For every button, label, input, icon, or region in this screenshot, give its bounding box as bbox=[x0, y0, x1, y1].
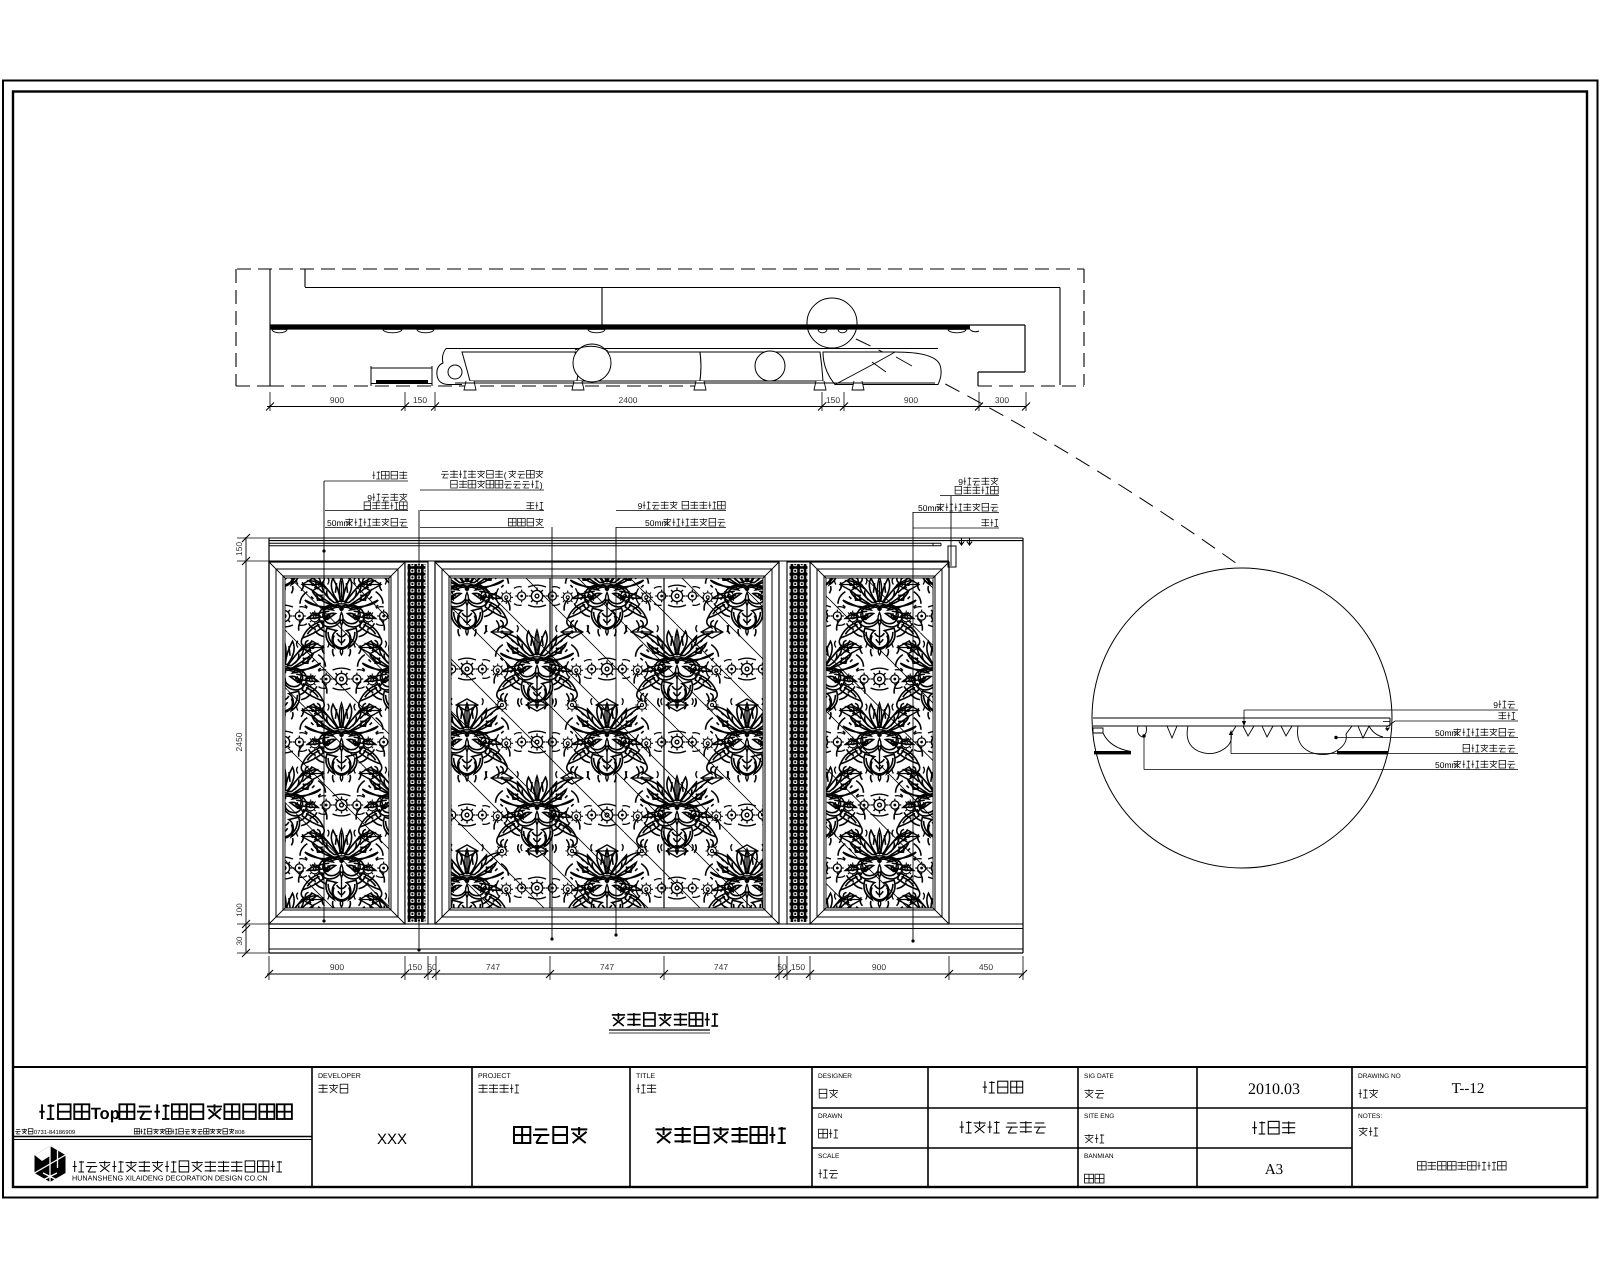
svg-text:9: 9 bbox=[638, 501, 643, 511]
svg-text:150: 150 bbox=[413, 395, 427, 405]
svg-text:DRAWN: DRAWN bbox=[818, 1113, 843, 1120]
svg-text:2010.03: 2010.03 bbox=[1248, 1081, 1300, 1098]
svg-text:9: 9 bbox=[958, 477, 963, 487]
svg-text:T--12: T--12 bbox=[1452, 1081, 1485, 1097]
svg-text:300: 300 bbox=[995, 395, 1009, 405]
svg-text:(: ( bbox=[504, 470, 507, 480]
svg-text:150: 150 bbox=[826, 395, 840, 405]
svg-text:SIG DATE: SIG DATE bbox=[1084, 1073, 1115, 1080]
svg-text:50: 50 bbox=[427, 962, 437, 972]
svg-text:Top: Top bbox=[91, 1105, 120, 1123]
svg-text:900: 900 bbox=[330, 395, 344, 405]
svg-text:900: 900 bbox=[872, 962, 886, 972]
svg-text:747: 747 bbox=[600, 962, 614, 972]
svg-text:150: 150 bbox=[791, 962, 805, 972]
svg-text:50: 50 bbox=[777, 962, 787, 972]
svg-text:150: 150 bbox=[408, 962, 422, 972]
svg-text:9: 9 bbox=[1493, 700, 1498, 710]
svg-text:A3: A3 bbox=[1265, 1162, 1283, 1178]
svg-text:450: 450 bbox=[979, 962, 993, 972]
svg-text:9: 9 bbox=[367, 493, 372, 503]
svg-text:100: 100 bbox=[235, 903, 244, 917]
svg-text:DEVELOPER: DEVELOPER bbox=[318, 1073, 361, 1080]
svg-text:900: 900 bbox=[330, 962, 344, 972]
svg-text:SCALE: SCALE bbox=[818, 1153, 840, 1160]
svg-text:2400: 2400 bbox=[619, 395, 638, 405]
svg-text:808: 808 bbox=[235, 1129, 246, 1136]
svg-text:DESIGNER: DESIGNER bbox=[818, 1073, 852, 1080]
svg-text:DRAWING NO: DRAWING NO bbox=[1358, 1073, 1401, 1080]
svg-text:747: 747 bbox=[714, 962, 728, 972]
svg-text:30: 30 bbox=[235, 936, 244, 945]
svg-text:XXX: XXX bbox=[377, 1131, 407, 1148]
svg-text:747: 747 bbox=[486, 962, 500, 972]
svg-text:0731-84186909: 0731-84186909 bbox=[34, 1129, 75, 1136]
svg-text:): ) bbox=[540, 480, 543, 490]
svg-text:NOTES:: NOTES: bbox=[1358, 1113, 1382, 1120]
svg-text:SITE ENG: SITE ENG bbox=[1084, 1113, 1114, 1120]
svg-text:PROJECT: PROJECT bbox=[478, 1073, 511, 1080]
svg-text:BANMIAN: BANMIAN bbox=[1084, 1153, 1114, 1160]
svg-text:HUNANSHENG XILAIDENG DECORATIO: HUNANSHENG XILAIDENG DECORATION DESIGN C… bbox=[72, 1174, 268, 1183]
svg-text:900: 900 bbox=[904, 395, 918, 405]
svg-text:150: 150 bbox=[234, 542, 244, 556]
svg-text:TITLE: TITLE bbox=[636, 1073, 655, 1080]
svg-text:2450: 2450 bbox=[234, 732, 244, 751]
